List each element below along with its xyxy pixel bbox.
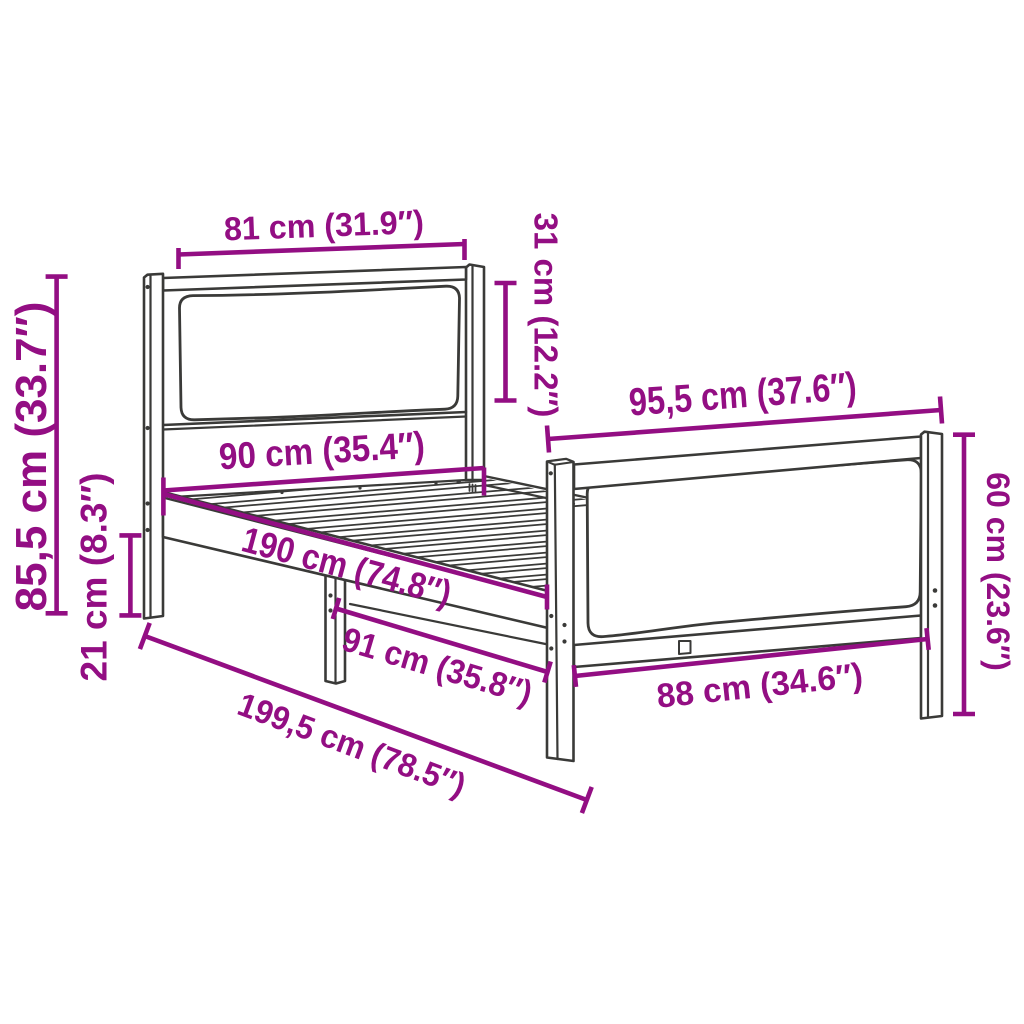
svg-text:21 cm (8.3″): 21 cm (8.3″) [73,473,114,682]
svg-text:81 cm (31.9″): 81 cm (31.9″) [223,203,424,247]
svg-text:31 cm (12.2″): 31 cm (12.2″) [527,213,564,418]
svg-text:60 cm (23.6″): 60 cm (23.6″) [980,472,1016,671]
svg-text:85,5 cm (33.7″): 85,5 cm (33.7″) [7,302,56,612]
